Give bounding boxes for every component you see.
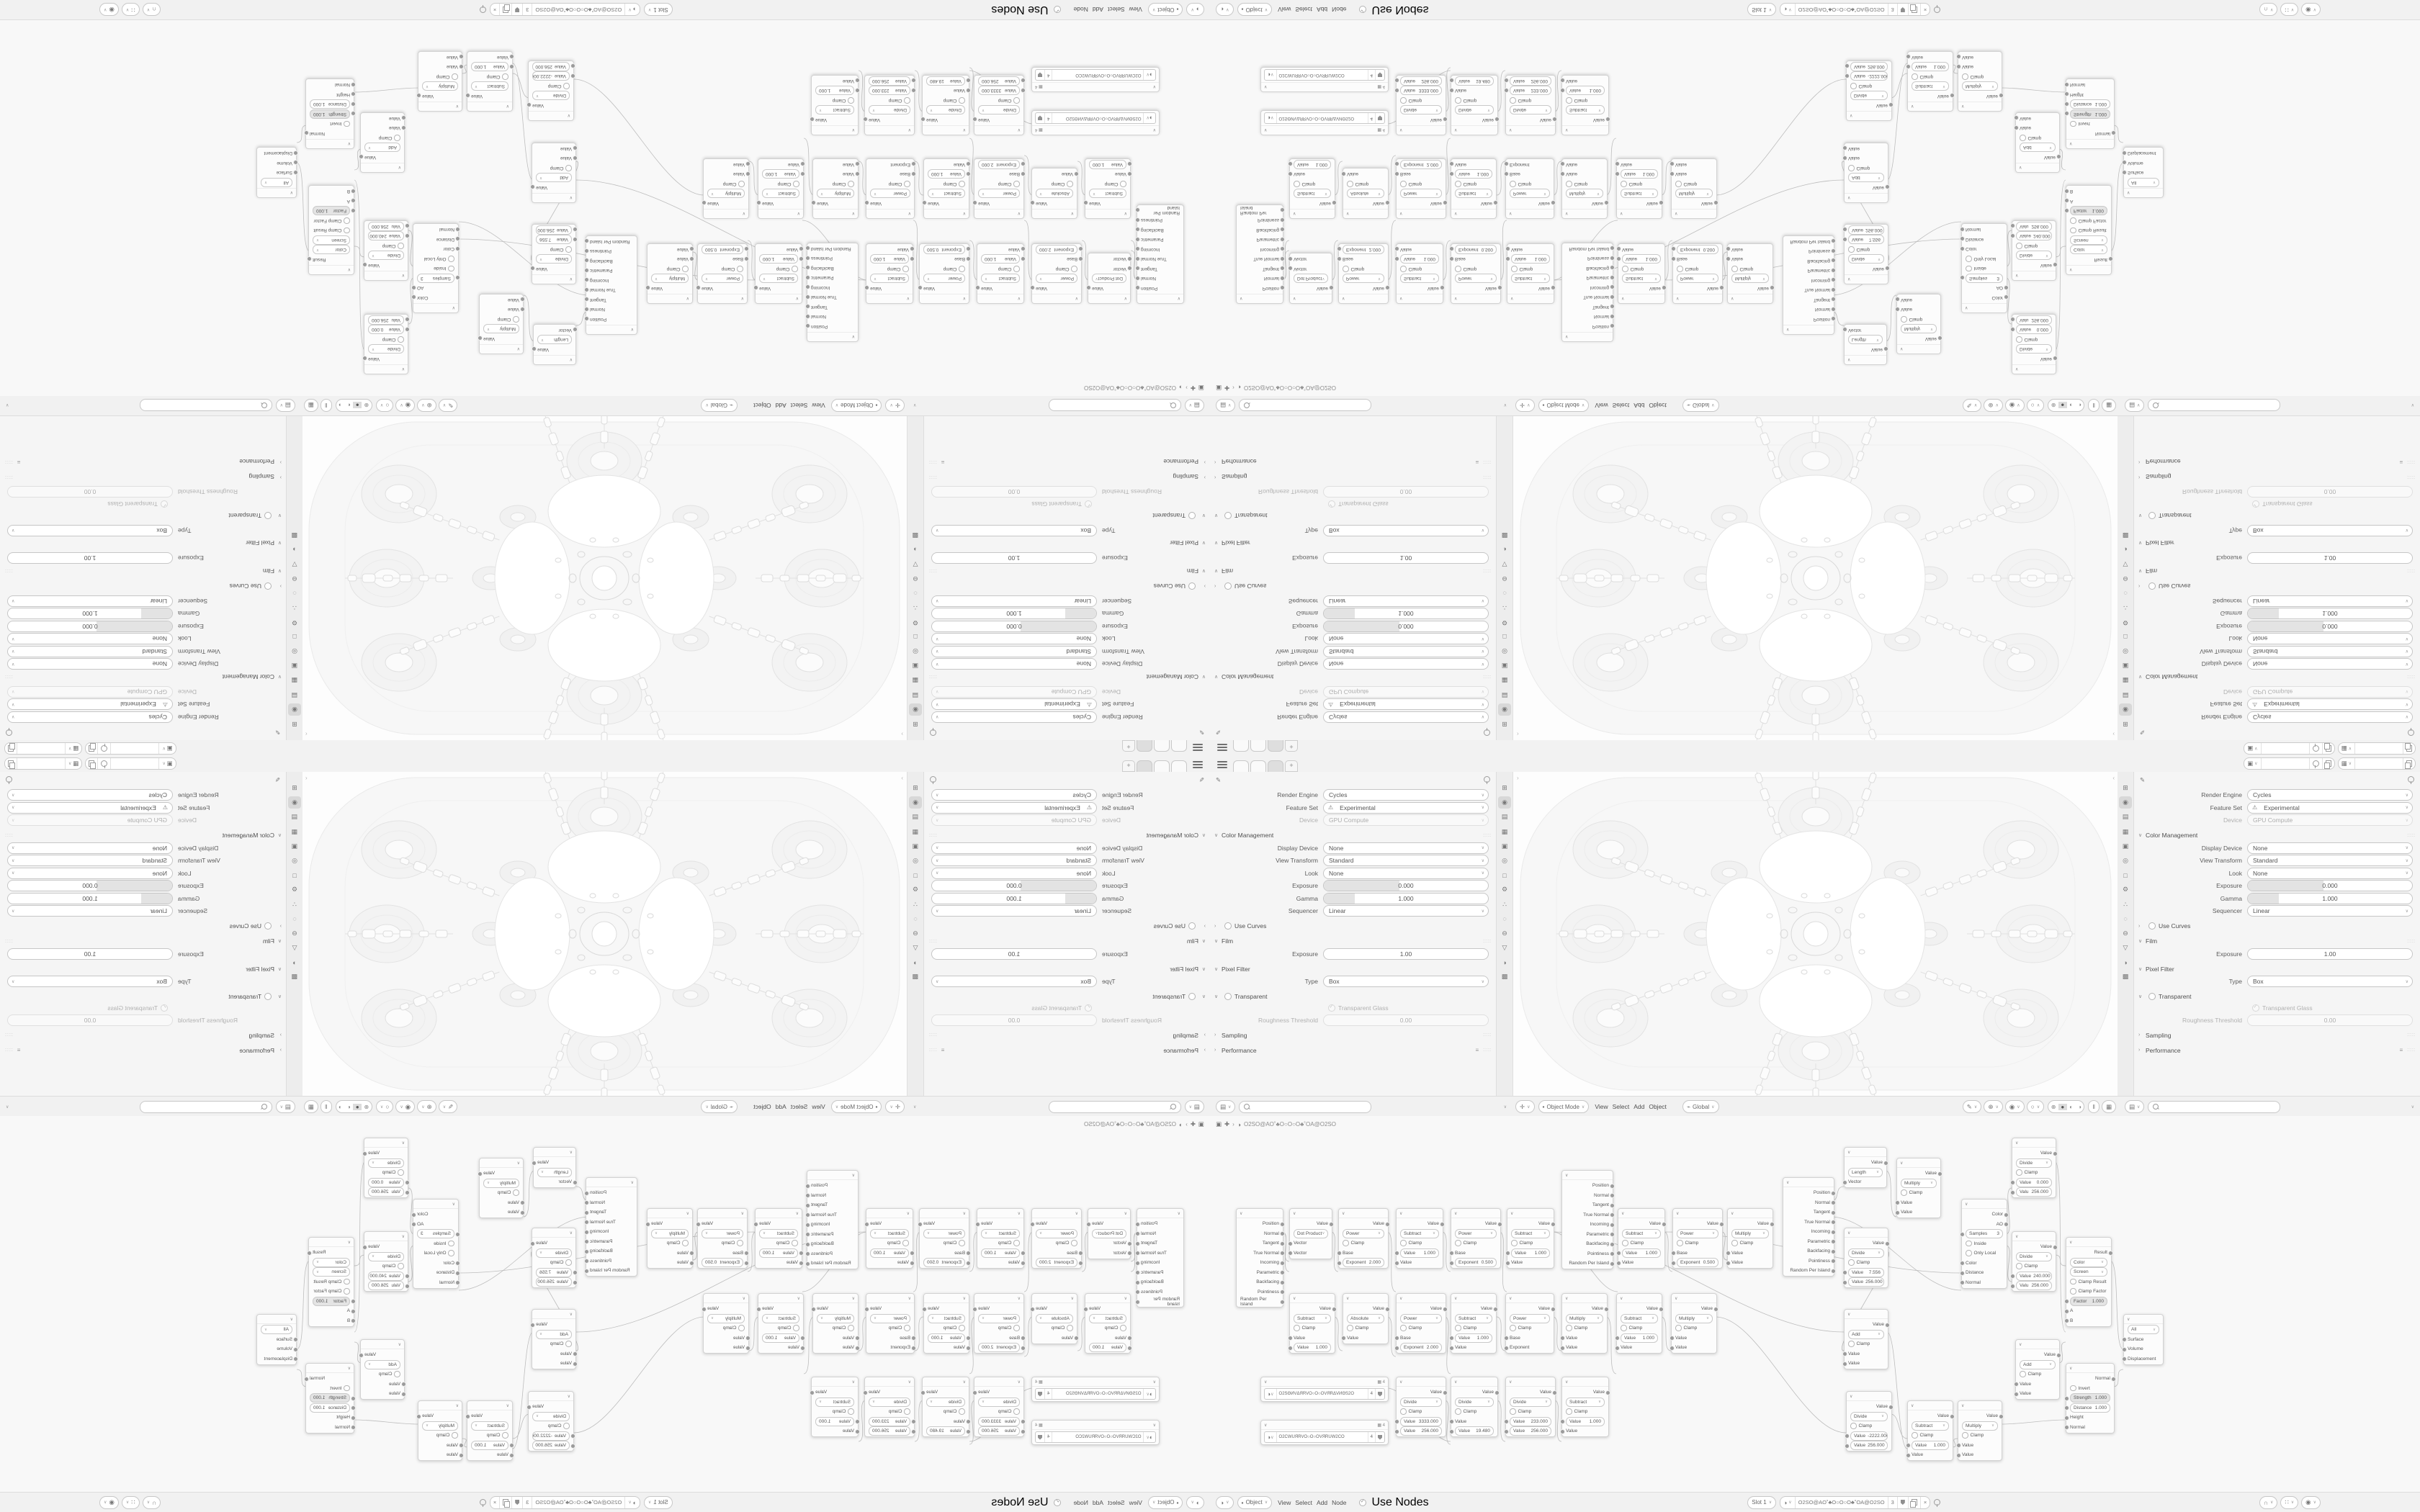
section-checkbox[interactable] bbox=[1188, 582, 1196, 590]
node-checkbox[interactable] bbox=[398, 336, 405, 343]
constraints-properties-tab-icon[interactable]: ⊖ bbox=[1498, 572, 1511, 585]
operation-dropdown[interactable]: Divide∨ bbox=[1510, 106, 1551, 115]
image-datablock[interactable]: ◑∨O2SΘИVΔЯRVO○O○OVЯRΔVИΘS2O4 bbox=[1264, 112, 1385, 124]
operation-dropdown[interactable]: Subtract∨ bbox=[1089, 189, 1126, 199]
object-data-properties-tab-icon[interactable]: ▽ bbox=[288, 558, 301, 570]
operation-dropdown[interactable]: Dot Product∨ bbox=[1294, 1229, 1328, 1238]
browse-material-icon[interactable]: ◑ bbox=[1783, 1499, 1787, 1506]
image-datablock[interactable]: ◑∨O2SΘИVΔЯRVO○O○OVЯRΔVИΘS2O4 bbox=[1035, 1388, 1156, 1400]
node-mulB2[interactable]: ∨ValueMultiply∨ClampValueValue bbox=[703, 1293, 749, 1354]
node-header-toggle-0[interactable]: ∩∨ bbox=[2259, 4, 2278, 17]
section-chevron-icon[interactable]: › bbox=[1214, 1048, 1222, 1053]
drag-grip-icon[interactable]: :::: bbox=[2407, 474, 2416, 480]
panel-section-transparent[interactable]: ∨Transparent bbox=[928, 510, 1206, 521]
shading-mode-2-icon[interactable]: ◐ bbox=[344, 402, 353, 409]
node-checkbox[interactable] bbox=[1510, 97, 1516, 104]
node-powA3[interactable]: ∨ValuePower∨ClampBaseExponent0.500 bbox=[697, 243, 748, 304]
material-datablock-selector[interactable]: ◑∨ O2SO@AO˚♣O○O○O♣˚OA@O2SO 3 × bbox=[490, 1496, 640, 1509]
prop-render-engine-field[interactable]: Cycles∨ bbox=[2247, 789, 2413, 801]
node-dot[interactable]: ∨ValueDot Product∨VectorVector bbox=[1088, 253, 1131, 305]
panel-section-film[interactable]: ∨Film:::: bbox=[2138, 936, 2416, 947]
node-mulB2[interactable]: ∨ValueMultiply∨ClampValueValue bbox=[1671, 1293, 1717, 1354]
panel-section-color-management[interactable]: ∨Color Management:::: bbox=[4, 830, 282, 841]
section-chevron-icon[interactable]: ∨ bbox=[2138, 994, 2146, 999]
value-field[interactable]: Value-2222.000 bbox=[532, 1431, 570, 1441]
operation-dropdown[interactable]: Color∨ bbox=[313, 1258, 350, 1267]
panel-section-transparent[interactable]: ∨Transparent bbox=[1214, 991, 1492, 1002]
node-checkbox[interactable] bbox=[566, 165, 573, 171]
image-name[interactable]: O2CWUЯRVO○O○OVЯRUW2CO bbox=[1276, 70, 1368, 80]
shading-mode-switch[interactable]: ⊕●◐◑ bbox=[2048, 399, 2084, 412]
node-checkbox[interactable] bbox=[344, 217, 351, 224]
node-subA2[interactable]: ∨ValueSubtract∨ClampValue1.000Value bbox=[866, 1208, 913, 1269]
menu-add[interactable]: Add bbox=[774, 1103, 789, 1110]
operation-dropdown[interactable]: Dot Product∨ bbox=[1294, 274, 1328, 284]
fake-user-shield-icon[interactable] bbox=[1038, 1435, 1042, 1440]
node-checkbox[interactable] bbox=[344, 1279, 351, 1285]
node-powA1[interactable]: ∨ValuePower∨ClampBaseExponent2.000 bbox=[1338, 243, 1389, 304]
node-checkbox[interactable] bbox=[514, 316, 520, 323]
view-layer-properties-tab-icon[interactable]: ▦ bbox=[2119, 826, 2132, 838]
operation-dropdown[interactable]: Subtract∨ bbox=[471, 82, 508, 91]
value-field[interactable]: Value1.000 bbox=[981, 1248, 1020, 1258]
value-field[interactable]: Valu256.000 bbox=[2016, 222, 2052, 231]
node-divC3[interactable]: ∨ValueDivide∨ClampValue233.000Value256.0… bbox=[864, 1377, 915, 1437]
drag-grip-icon[interactable]: :::: bbox=[1483, 939, 1492, 944]
section-chevron-icon[interactable]: › bbox=[1214, 474, 1222, 480]
value-field[interactable]: Value0.000 bbox=[368, 1178, 404, 1187]
value-field[interactable]: Value1.000 bbox=[1912, 1441, 1949, 1450]
viewport-toggle-0[interactable]: ✎∨ bbox=[439, 1100, 458, 1113]
object-properties-tab-icon[interactable]: □ bbox=[1498, 869, 1511, 881]
node-checkbox[interactable] bbox=[398, 1169, 405, 1176]
view-layer-properties-tab-icon[interactable]: ▦ bbox=[288, 674, 301, 686]
value-field[interactable]: Value1.000 bbox=[815, 86, 854, 96]
node-g2[interactable]: ∨PositionNormalTangentTrue NormalIncomin… bbox=[1561, 1170, 1613, 1269]
prop-render-engine-field[interactable]: Cycles∨ bbox=[1323, 789, 1489, 801]
node-checkbox[interactable] bbox=[1901, 1189, 1907, 1196]
viewport-editor-type-button[interactable]: ✛∨ bbox=[885, 1100, 905, 1113]
app-menu-icon[interactable] bbox=[1193, 744, 1203, 751]
section-chevron-icon[interactable]: ∨ bbox=[1214, 994, 1222, 999]
operation-dropdown[interactable]: Multiply∨ bbox=[817, 189, 854, 199]
operation-dropdown[interactable]: Divide∨ bbox=[1455, 106, 1494, 115]
operation-dropdown[interactable]: Divide∨ bbox=[1455, 1398, 1494, 1407]
options-chevron[interactable]: ∨ bbox=[2411, 403, 2414, 408]
scene-properties-tab-icon[interactable]: ▣ bbox=[909, 840, 922, 852]
operation-dropdown[interactable]: Subtract∨ bbox=[1912, 1421, 1949, 1431]
node-abs[interactable]: ∨ValueAbsolute∨ClampValue bbox=[1031, 1293, 1077, 1344]
node-dot[interactable]: ∨ValueDot Product∨VectorVector bbox=[1088, 1208, 1131, 1259]
view-layer-properties-tab-icon[interactable]: ▦ bbox=[288, 826, 301, 838]
constraints-properties-tab-icon[interactable]: ⊖ bbox=[288, 572, 301, 585]
operation-dropdown[interactable]: Add∨ bbox=[1848, 1330, 1884, 1339]
node-menu-select[interactable]: Select bbox=[1293, 1499, 1314, 1506]
section-chevron-icon[interactable]: › bbox=[1198, 584, 1206, 589]
properties-editor-type-button[interactable]: ▤∨ bbox=[1185, 399, 1204, 412]
panel-section-sampling[interactable]: ›Sampling:::: bbox=[4, 1030, 282, 1040]
prop-type-field[interactable]: Box∨ bbox=[931, 525, 1097, 536]
particles-properties-tab-icon[interactable]: ∴ bbox=[288, 602, 301, 614]
constraints-properties-tab-icon[interactable]: ⊖ bbox=[2119, 572, 2132, 585]
prop-gamma-field[interactable]: 1.000 bbox=[1323, 608, 1489, 620]
value-field[interactable]: Value256.000 bbox=[1850, 1441, 1888, 1450]
node-powB2[interactable]: ∨ValuePower∨ClampBaseExponent bbox=[1505, 1293, 1554, 1354]
drag-grip-icon[interactable]: :::: bbox=[2407, 833, 2416, 838]
node-mulR1[interactable]: ∨ValueMultiply∨ClampValueValue bbox=[1896, 294, 1941, 354]
options-chevron[interactable]: ∨ bbox=[1504, 403, 1507, 408]
operation-dropdown[interactable]: Subtract∨ bbox=[1400, 274, 1439, 284]
workspace-tab[interactable] bbox=[1268, 740, 1283, 752]
use-nodes-toggle[interactable]: Use Nodes bbox=[991, 1496, 1063, 1509]
operation-dropdown[interactable]: Divide∨ bbox=[978, 106, 1020, 115]
value-field[interactable]: Value233.000 bbox=[869, 86, 910, 96]
prop-feature-set-field[interactable]: ⚠Experimental∨ bbox=[2247, 802, 2413, 814]
node-editor-type-button[interactable]: ◑∨ bbox=[1186, 4, 1204, 17]
operation-dropdown[interactable]: All∨ bbox=[2128, 178, 2159, 187]
menu-select[interactable]: Select bbox=[1610, 402, 1632, 409]
section-chevron-icon[interactable]: ∨ bbox=[1214, 568, 1222, 574]
node-checkbox[interactable] bbox=[2070, 121, 2076, 127]
operation-dropdown[interactable]: Multiply∨ bbox=[483, 1179, 519, 1188]
operation-dropdown[interactable]: All∨ bbox=[261, 178, 292, 187]
operation-dropdown[interactable]: Divide∨ bbox=[1850, 91, 1888, 101]
prop-look-field[interactable]: None∨ bbox=[2247, 634, 2413, 645]
node-len[interactable]: ∨ValueLength∨Vector bbox=[1844, 324, 1887, 365]
view-layer-properties-tab-icon[interactable]: ▦ bbox=[1498, 826, 1511, 838]
node-checkbox[interactable] bbox=[903, 266, 910, 272]
node-checkbox[interactable] bbox=[564, 83, 570, 89]
node-mulA1[interactable]: ∨ValueMultiply∨ClampValueValue bbox=[647, 1208, 693, 1269]
prop-sequencer-field[interactable]: Linear∨ bbox=[2247, 905, 2413, 917]
drag-grip-icon[interactable]: :::: bbox=[1483, 833, 1492, 838]
texture-properties-tab-icon[interactable]: ▩ bbox=[1498, 529, 1511, 541]
node-subA3[interactable]: ∨ValueSubtract∨ClampValue1.000Value bbox=[1618, 243, 1665, 304]
world-properties-tab-icon[interactable]: ◎ bbox=[1498, 645, 1511, 657]
use-nodes-toggle[interactable]: Use Nodes bbox=[1356, 1496, 1428, 1509]
node-divC1[interactable]: ∨ValueDivide∨ClampValue3333.000Value256.… bbox=[1396, 1377, 1446, 1437]
node-g3[interactable]: ∨PositionNormalTangentTrue NormalIncomin… bbox=[1783, 235, 1834, 335]
node-mulA1[interactable]: ∨ValueMultiply∨ClampValueValue bbox=[1727, 243, 1773, 304]
menu-view[interactable]: View bbox=[810, 1103, 827, 1110]
physics-properties-tab-icon[interactable]: ◌ bbox=[909, 913, 922, 925]
section-chevron-icon[interactable]: ∨ bbox=[274, 994, 282, 999]
mode-selector[interactable]: ▪Object Mode∨ bbox=[1538, 399, 1590, 412]
presets-list-icon[interactable]: ≡ bbox=[941, 459, 945, 465]
section-chevron-icon[interactable]: › bbox=[1198, 474, 1206, 480]
value-field[interactable]: Factor1.000 bbox=[313, 1297, 350, 1306]
prop-device-field[interactable]: GPU Compute∨ bbox=[931, 686, 1097, 698]
operation-dropdown[interactable]: All∨ bbox=[2128, 1325, 2159, 1334]
section-chevron-icon[interactable]: › bbox=[2138, 474, 2146, 480]
use-nodes-checkbox[interactable] bbox=[1359, 1499, 1366, 1506]
node-editor-type-button[interactable]: ◑∨ bbox=[1216, 1496, 1234, 1509]
image-user-count[interactable]: 4 bbox=[1045, 1432, 1052, 1442]
prop-gamma-field[interactable]: 1.000 bbox=[2247, 608, 2413, 620]
section-chevron-icon[interactable]: › bbox=[1198, 1048, 1206, 1053]
operation-dropdown[interactable]: Divide∨ bbox=[869, 1398, 910, 1407]
panel-section-transparent[interactable]: ∨Transparent bbox=[4, 991, 282, 1002]
node-len[interactable]: ∨ValueLength∨Vector bbox=[533, 324, 576, 365]
modifiers-properties-tab-icon[interactable]: ⚙ bbox=[2119, 883, 2132, 896]
checkbox[interactable] bbox=[161, 500, 168, 508]
shader-node-editor[interactable]: ▣ ✚ › ◑ O2SO@AO˚♣O○O○O♣˚OA@O2SO ∨Positio… bbox=[0, 1116, 1210, 1492]
node-checkbox[interactable] bbox=[2070, 1279, 2076, 1285]
value-field[interactable]: Value1.000 bbox=[1400, 1248, 1439, 1258]
menu-select[interactable]: Select bbox=[789, 1103, 810, 1110]
operation-dropdown[interactable]: Divide∨ bbox=[926, 1398, 965, 1407]
checkbox[interactable] bbox=[2252, 500, 2259, 508]
node-header-toggle-2[interactable]: ◉∨ bbox=[2301, 1496, 2321, 1509]
app-menu-icon[interactable] bbox=[1193, 761, 1203, 768]
node-g3[interactable]: ∨PositionNormalTangentTrue NormalIncomin… bbox=[1783, 1177, 1834, 1277]
workspace-tab[interactable] bbox=[1171, 740, 1187, 752]
section-chevron-icon[interactable]: ∨ bbox=[1214, 674, 1222, 680]
node-checkbox[interactable] bbox=[1566, 97, 1572, 104]
view-layer-selector[interactable]: ▦∨ bbox=[2338, 742, 2416, 755]
section-chevron-icon[interactable]: ∨ bbox=[2138, 674, 2146, 680]
operation-dropdown[interactable]: Divide∨ bbox=[1848, 1248, 1884, 1258]
node-mulR2[interactable]: ∨ValueMultiply∨ClampValueValue bbox=[1958, 51, 2002, 112]
node-checkbox[interactable] bbox=[395, 135, 401, 141]
node-header-toggle-2[interactable]: ◉∨ bbox=[99, 4, 119, 17]
section-chevron-icon[interactable]: › bbox=[1214, 1032, 1222, 1038]
node-subC1[interactable]: ∨ValueSubtract∨ClampValue1.000Value bbox=[811, 75, 859, 135]
node-subB1[interactable]: ∨ValueSubtract∨ClampValueValue1.000 bbox=[1085, 1293, 1131, 1354]
properties-search-field[interactable] bbox=[140, 1101, 272, 1113]
section-chevron-icon[interactable]: ∨ bbox=[274, 568, 282, 574]
node-subB2[interactable]: ∨ValueSubtract∨ClampValue1.000Value bbox=[923, 1293, 969, 1354]
value-field[interactable]: Exponent0.500 bbox=[923, 245, 965, 254]
node-checkbox[interactable] bbox=[1677, 266, 1683, 272]
prop-roughness-threshold-field[interactable]: 0.00 bbox=[931, 1014, 1097, 1026]
constraints-properties-tab-icon[interactable]: ⊖ bbox=[909, 572, 922, 585]
object-properties-tab-icon[interactable]: □ bbox=[288, 631, 301, 643]
value-field[interactable]: Value256.000 bbox=[1510, 76, 1551, 86]
presets-list-icon[interactable]: ≡ bbox=[1476, 459, 1479, 465]
prop-device-field[interactable]: GPU Compute∨ bbox=[2247, 814, 2413, 826]
shading-mode-3-icon[interactable]: ◑ bbox=[2076, 1104, 2084, 1110]
scene-properties-tab-icon[interactable]: ▣ bbox=[288, 840, 301, 852]
prop-roughness-threshold-field[interactable]: 0.00 bbox=[2247, 487, 2413, 498]
operation-dropdown[interactable]: Multiply∨ bbox=[1962, 82, 1998, 91]
node-checkbox[interactable] bbox=[959, 1240, 966, 1246]
unlink-material-button[interactable]: × bbox=[490, 1497, 500, 1508]
prop-look-field[interactable]: None∨ bbox=[7, 868, 173, 879]
node-checkbox[interactable] bbox=[959, 181, 966, 187]
panel-section-performance[interactable]: ›Performance≡:::: bbox=[928, 1045, 1206, 1056]
node-powB2[interactable]: ∨ValuePower∨ClampBaseExponent bbox=[866, 1293, 915, 1354]
drag-grip-icon[interactable]: :::: bbox=[928, 1032, 937, 1038]
panel-section-use-curves[interactable]: ›Use Curves bbox=[4, 581, 282, 592]
panel-section-pixel-filter[interactable]: ∨Pixel Filter bbox=[2138, 963, 2416, 974]
operation-dropdown[interactable]: Divide∨ bbox=[536, 255, 572, 264]
viewport-editor-type-button[interactable]: ✛∨ bbox=[1515, 399, 1535, 412]
operation-dropdown[interactable]: Subtract∨ bbox=[762, 1314, 799, 1323]
operation-dropdown[interactable]: Divide∨ bbox=[368, 1252, 404, 1261]
viewport-toggle-0[interactable]: ✎∨ bbox=[1963, 399, 1982, 412]
new-view-layer-icon[interactable] bbox=[8, 760, 14, 767]
particles-properties-tab-icon[interactable]: ∴ bbox=[2119, 899, 2132, 911]
node-subA1[interactable]: ∨ValueSubtract∨ClampValue1.000Value bbox=[1396, 1208, 1443, 1269]
section-chevron-icon[interactable]: ∨ bbox=[274, 674, 282, 680]
node-powA2[interactable]: ∨ValuePower∨ClampBaseExponent0.500 bbox=[919, 243, 969, 304]
shading-mode-1-icon[interactable]: ● bbox=[2058, 1104, 2067, 1110]
node-powB1[interactable]: ∨ValuePower∨ClampBaseExponent2.000 bbox=[974, 158, 1024, 219]
node-bump[interactable]: ∨NormalInvertStrength1.000Distance1.000H… bbox=[305, 79, 354, 150]
physics-properties-tab-icon[interactable]: ◌ bbox=[909, 587, 922, 599]
operation-dropdown[interactable]: Subtract∨ bbox=[1566, 106, 1605, 115]
object-data-properties-tab-icon[interactable]: ▽ bbox=[2119, 558, 2132, 570]
node-checkbox[interactable] bbox=[903, 1240, 910, 1246]
prop-exposure-field[interactable]: 1.00 bbox=[931, 553, 1097, 564]
operation-dropdown[interactable]: Power∨ bbox=[1343, 1229, 1384, 1238]
world-properties-tab-icon[interactable]: ◎ bbox=[909, 645, 922, 657]
node-checkbox[interactable] bbox=[1850, 1423, 1857, 1429]
operation-dropdown[interactable]: Power∨ bbox=[702, 274, 743, 284]
view-layer-name[interactable] bbox=[2354, 743, 2403, 754]
node-checkbox[interactable] bbox=[1675, 1325, 1682, 1331]
node-subA2[interactable]: ∨ValueSubtract∨ClampValue1.000Value bbox=[866, 243, 913, 304]
operation-dropdown[interactable]: Subtract∨ bbox=[815, 106, 854, 115]
section-chevron-icon[interactable]: ∨ bbox=[1214, 513, 1222, 518]
texture-properties-tab-icon[interactable]: ▩ bbox=[2119, 971, 2132, 983]
node-checkbox[interactable] bbox=[398, 243, 405, 249]
node-img1[interactable]: ∨▦ 4◑∨O2SΘИVΔЯRVO○O○OVЯRΔVИΘS2O4 bbox=[1260, 1377, 1389, 1402]
node-outn[interactable]: ∨All∨SurfaceVolumeDisplacement bbox=[2123, 148, 2164, 199]
output-properties-tab-icon[interactable]: ▤ bbox=[1498, 689, 1511, 701]
prop-type-field[interactable]: Box∨ bbox=[931, 976, 1097, 987]
section-checkbox[interactable] bbox=[1188, 922, 1196, 930]
value-field[interactable]: Value233.000 bbox=[869, 1417, 910, 1426]
shading-mode-2-icon[interactable]: ◐ bbox=[2067, 1104, 2076, 1110]
workspace-tab[interactable] bbox=[1154, 760, 1170, 772]
node-divR2[interactable]: ∨ValueDivide∨ClampValue-2222.000Value256… bbox=[528, 60, 574, 121]
drag-grip-icon[interactable]: :::: bbox=[2407, 569, 2416, 574]
unlink-material-button[interactable]: × bbox=[490, 4, 500, 16]
material-properties-tab-icon[interactable]: ◑ bbox=[2119, 544, 2132, 556]
operation-dropdown[interactable]: Subtract∨ bbox=[928, 1314, 965, 1323]
operation-dropdown[interactable]: Divide∨ bbox=[1400, 106, 1442, 115]
particles-properties-tab-icon[interactable]: ∴ bbox=[2119, 602, 2132, 614]
section-chevron-icon[interactable]: ∨ bbox=[1198, 674, 1206, 680]
node-checkbox[interactable] bbox=[344, 1288, 351, 1295]
node-menu-view[interactable]: View bbox=[1276, 6, 1293, 14]
workspace-tab[interactable] bbox=[1137, 760, 1152, 772]
node-checkbox[interactable] bbox=[1067, 181, 1074, 187]
shader-type-selector[interactable]: ▪Object∨ bbox=[1237, 4, 1273, 17]
operation-dropdown[interactable]: Multiply∨ bbox=[1962, 1421, 1998, 1431]
prop-roughness-threshold-field[interactable]: 0.00 bbox=[1323, 1014, 1489, 1026]
value-field[interactable]: Value1.000 bbox=[1294, 1343, 1331, 1352]
node-divC2[interactable]: ∨ValueDivide∨ClampValueValue19.480 bbox=[1451, 1377, 1498, 1437]
operation-dropdown[interactable]: Length∨ bbox=[537, 336, 572, 345]
prop-type-field[interactable]: Box∨ bbox=[1323, 976, 1489, 987]
physics-properties-tab-icon[interactable]: ◌ bbox=[2119, 587, 2132, 599]
node-mulB2[interactable]: ∨ValueMultiply∨ClampValueValue bbox=[703, 158, 749, 219]
section-chevron-icon[interactable]: ∨ bbox=[1198, 938, 1206, 944]
section-chevron-icon[interactable]: › bbox=[274, 1032, 282, 1038]
node-checkbox[interactable] bbox=[848, 1408, 855, 1415]
value-field[interactable]: Value1.000 bbox=[759, 1248, 798, 1258]
prop-exposure-field[interactable]: 1.00 bbox=[1323, 948, 1489, 960]
object-data-properties-tab-icon[interactable]: ▽ bbox=[909, 942, 922, 954]
prop-device-field[interactable]: GPU Compute∨ bbox=[1323, 686, 1489, 698]
node-powA2[interactable]: ∨ValuePower∨ClampBaseExponent0.500 bbox=[919, 1208, 969, 1269]
panel-section-use-curves[interactable]: ›Use Curves bbox=[1214, 581, 1492, 592]
image-user-count[interactable]: 4 bbox=[1045, 113, 1052, 123]
node-checkbox[interactable] bbox=[905, 1408, 911, 1415]
object-data-properties-tab-icon[interactable]: ▽ bbox=[909, 558, 922, 570]
operation-dropdown[interactable]: Color∨ bbox=[313, 246, 350, 255]
prop-device-field[interactable]: GPU Compute∨ bbox=[931, 814, 1097, 826]
duplicate-material-icon[interactable] bbox=[1912, 1499, 1917, 1506]
new-scene-icon[interactable] bbox=[89, 745, 94, 752]
value-field[interactable]: Value1.000 bbox=[1621, 170, 1658, 179]
panel-section-use-curves[interactable]: ›Use Curves bbox=[2138, 581, 2416, 592]
node-checkbox[interactable] bbox=[1962, 1432, 1968, 1439]
prop-sequencer-field[interactable]: Linear∨ bbox=[1323, 595, 1489, 607]
constraints-properties-tab-icon[interactable]: ⊖ bbox=[2119, 927, 2132, 940]
prop-exposure-field[interactable]: 1.00 bbox=[931, 948, 1097, 960]
operation-dropdown[interactable]: Divide∨ bbox=[2016, 1252, 2052, 1261]
prop-feature-set-field[interactable]: ⚠Experimental∨ bbox=[7, 699, 173, 711]
duplicate-material-icon[interactable] bbox=[503, 6, 508, 13]
value-field[interactable]: Value19.480 bbox=[1455, 1426, 1494, 1436]
operation-dropdown[interactable]: Multiply∨ bbox=[707, 189, 745, 199]
image-user-count[interactable]: 4 bbox=[1368, 1432, 1375, 1442]
value-field[interactable]: Value1.000 bbox=[1566, 86, 1605, 96]
node-divR4[interactable]: ∨ValueDivide∨ClampValue240.000Valu256.00… bbox=[364, 220, 408, 281]
node-checkbox[interactable] bbox=[452, 1432, 459, 1439]
value-field[interactable]: Value7.556 bbox=[1848, 1268, 1884, 1277]
value-field[interactable]: Value7.556 bbox=[1848, 235, 1884, 245]
constraints-properties-tab-icon[interactable]: ⊖ bbox=[1498, 927, 1511, 940]
node-divR3[interactable]: ∨ValueDivide∨ClampValue0.000Valu256.000 bbox=[364, 1138, 408, 1198]
value-field[interactable]: Samples3 bbox=[1966, 1229, 2003, 1238]
fake-user-shield-icon[interactable] bbox=[1378, 73, 1382, 78]
value-field[interactable]: Value1.000 bbox=[1566, 1417, 1605, 1426]
fake-user-shield-icon[interactable] bbox=[1901, 7, 1905, 12]
panel-section-pixel-filter[interactable]: ∨Pixel Filter bbox=[928, 538, 1206, 549]
material-properties-tab-icon[interactable]: ◑ bbox=[288, 956, 301, 968]
value-field[interactable]: Exponent2.000 bbox=[1343, 245, 1384, 254]
node-checkbox[interactable] bbox=[1675, 181, 1682, 187]
node-checkbox[interactable] bbox=[2070, 228, 2076, 234]
modifiers-properties-tab-icon[interactable]: ⚙ bbox=[288, 883, 301, 896]
node-checkbox[interactable] bbox=[794, 1325, 800, 1331]
node-checkbox[interactable] bbox=[794, 181, 800, 187]
operation-dropdown[interactable]: Multiply∨ bbox=[651, 1229, 689, 1238]
image-user-count[interactable]: 4 bbox=[1368, 70, 1375, 80]
section-chevron-icon[interactable]: ∨ bbox=[1198, 994, 1206, 999]
texture-properties-tab-icon[interactable]: ▩ bbox=[1498, 971, 1511, 983]
section-chevron-icon[interactable]: ∨ bbox=[1198, 568, 1206, 574]
shading-mode-0-icon[interactable]: ⊕ bbox=[2048, 1104, 2058, 1110]
prop-transparent-glass[interactable]: Transparent Glass bbox=[931, 1004, 1095, 1013]
node-mulR2[interactable]: ∨ValueMultiply∨ClampValueValue bbox=[1958, 1400, 2002, 1461]
prop-sequencer-field[interactable]: Linear∨ bbox=[2247, 595, 2413, 607]
prop-feature-set-field[interactable]: ⚠Experimental∨ bbox=[7, 802, 173, 814]
options-chevron[interactable]: ∨ bbox=[2411, 1104, 2414, 1110]
output-properties-tab-icon[interactable]: ▤ bbox=[2119, 689, 2132, 701]
node-g1[interactable]: ∨PositionNormalTangentTrue NormalIncomin… bbox=[1137, 1208, 1184, 1308]
particles-properties-tab-icon[interactable]: ∴ bbox=[909, 602, 922, 614]
node-mulB2[interactable]: ∨ValueMultiply∨ClampValueValue bbox=[1671, 158, 1717, 219]
prop-view-transform-field[interactable]: Standard∨ bbox=[931, 855, 1097, 866]
fake-user-shield-icon[interactable] bbox=[515, 7, 519, 12]
add-workspace-button[interactable]: + bbox=[1285, 760, 1298, 772]
